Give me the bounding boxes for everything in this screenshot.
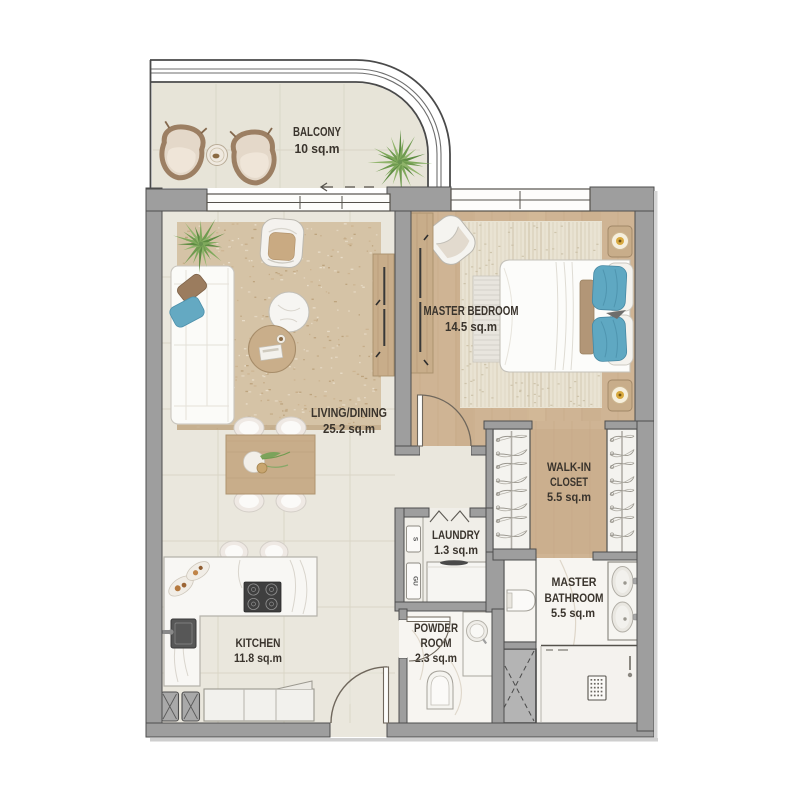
svg-text:ROOM: ROOM — [421, 638, 452, 650]
svg-text:11.8 sq.m: 11.8 sq.m — [234, 651, 282, 665]
svg-text:CLOSET: CLOSET — [550, 475, 589, 489]
svg-text:25.2 sq.m: 25.2 sq.m — [323, 421, 375, 436]
svg-text:LAUNDRY: LAUNDRY — [432, 530, 480, 542]
svg-text:BATHROOM: BATHROOM — [545, 591, 604, 605]
svg-text:14.5 sq.m: 14.5 sq.m — [445, 319, 497, 334]
svg-text:KITCHEN: KITCHEN — [236, 636, 281, 650]
svg-text:5.5 sq.m: 5.5 sq.m — [551, 606, 595, 620]
svg-text:1.3 sq.m: 1.3 sq.m — [434, 545, 478, 557]
svg-text:5.5 sq.m: 5.5 sq.m — [547, 490, 591, 504]
svg-text:MASTER: MASTER — [552, 575, 597, 589]
svg-text:POWDER: POWDER — [414, 623, 459, 635]
svg-text:S: S — [412, 537, 419, 542]
svg-text:10 sq.m: 10 sq.m — [295, 142, 340, 156]
svg-text:WALK-IN: WALK-IN — [547, 460, 591, 474]
svg-text:LIVING/DINING: LIVING/DINING — [311, 405, 387, 420]
svg-text:GU: GU — [412, 576, 419, 586]
svg-text:BALCONY: BALCONY — [293, 125, 342, 139]
svg-text:MASTER BEDROOM: MASTER BEDROOM — [424, 303, 519, 318]
